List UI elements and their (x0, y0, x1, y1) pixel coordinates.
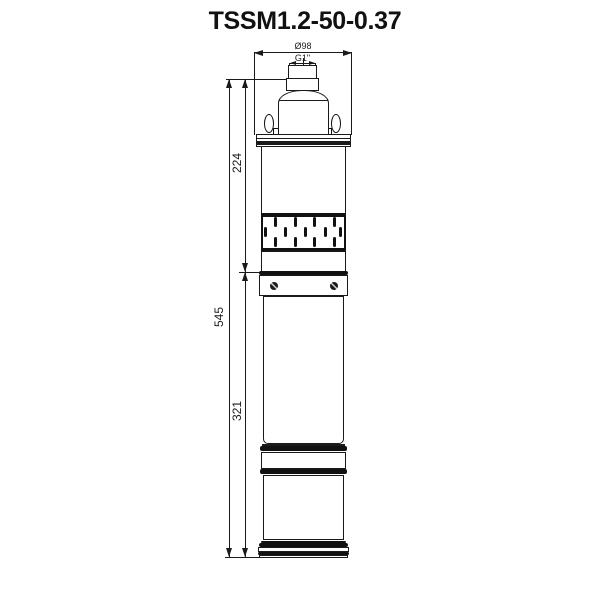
strainer-slot (333, 217, 336, 227)
coupling-ring-upper (260, 446, 347, 451)
flange-band (257, 141, 350, 145)
discharge-dome (278, 90, 329, 135)
strainer-slot (294, 217, 297, 227)
strainer-slot (274, 217, 277, 227)
dim-label-lower-length: 321 (230, 401, 244, 421)
strainer-section (261, 213, 346, 252)
coupling-section (261, 452, 346, 469)
witness-line-diameter-left (254, 52, 255, 135)
motor-body (263, 296, 344, 444)
outlet-thread-pipe (288, 65, 317, 79)
drawing-title: TSSM1.2-50-0.37 (0, 7, 600, 36)
strainer-slot (284, 227, 287, 237)
witness-line-bottom (225, 557, 263, 558)
lifting-eye-right (331, 114, 341, 133)
strainer-slot (264, 227, 267, 237)
strainer-slot (274, 237, 277, 247)
flange-line (257, 138, 350, 139)
strainer-slots (263, 217, 344, 248)
screw-left (270, 282, 278, 290)
arrowhead (242, 272, 248, 281)
motor-lower-body (263, 475, 344, 540)
strainer-slot (304, 227, 307, 237)
dim-label-upper-length: 224 (230, 153, 244, 173)
arrowhead (242, 79, 248, 88)
dim-line-sections (245, 79, 246, 557)
screw-right (330, 282, 338, 290)
bottom-cap-ring-5 (259, 555, 348, 558)
pump-upper-body (261, 146, 346, 214)
witness-line-top (226, 79, 288, 80)
pump-lower-band (261, 251, 346, 272)
strainer-slot (313, 237, 316, 247)
pump-drawing-canvas: TSSM1.2-50-0.37 224 545 321 Ø98 G1" (0, 0, 600, 600)
arrowhead (242, 548, 248, 557)
witness-line-diameter-right (351, 52, 352, 135)
strainer-slot (313, 217, 316, 227)
dim-label-total-length: 545 (212, 307, 226, 327)
screw-band (259, 275, 348, 296)
strainer-slot (324, 227, 327, 237)
dim-line-total (229, 79, 230, 557)
strainer-slot (294, 237, 297, 247)
arrowhead (226, 548, 232, 557)
strainer-slot (339, 227, 342, 237)
arrowhead (242, 263, 248, 272)
dome-joint-line (279, 100, 328, 101)
dim-label-diameter: Ø98 (254, 41, 352, 51)
coupling-ring-lower (260, 469, 347, 474)
arrowhead (226, 79, 232, 88)
strainer-slot (333, 237, 336, 247)
